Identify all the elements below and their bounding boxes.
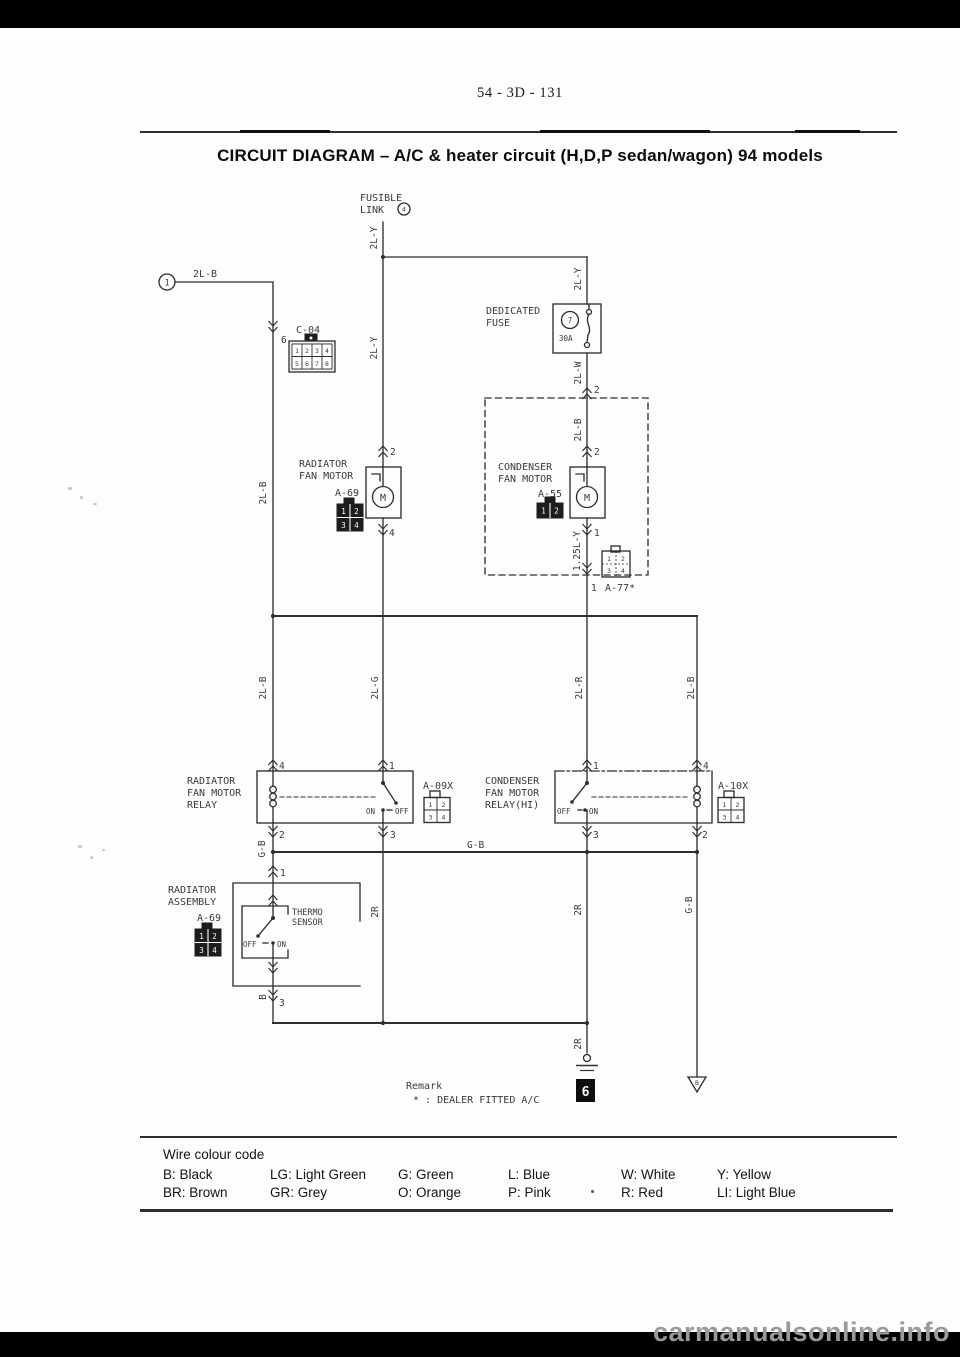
component-label: FAN MOTOR [187,788,242,799]
component-label: FAN MOTOR [485,788,540,799]
cell-number: 1 [341,507,346,516]
wire-label: 2R [370,906,381,918]
pin-label: 3 [279,998,285,1009]
component-label: ASSEMBLY [168,897,216,908]
relay-contact-dot [570,800,574,804]
connector-tab-dot [310,337,313,340]
relay-switch-arm [383,783,396,803]
pin-label: 2 [390,447,396,458]
switch-contact-dot [256,934,260,938]
legend-entry: GR: Grey [270,1185,327,1200]
scan-speck [591,1190,594,1193]
pin-label: 2 [594,447,600,458]
switch-contact-dot [271,941,275,945]
pin-label: 4 [389,528,395,539]
relay-contact-dot [583,808,587,812]
connector-label: A-69 [197,913,221,924]
wire-label: 2L-R [574,676,585,699]
switch-off-label: OFF [243,940,257,949]
legend-entry: R: Red [621,1185,663,1200]
radiator-fan-motor-relay: 4 1 RADIATOR FAN MOTOR RELAY ON OFF A-09… [187,760,453,841]
cell-number: 1 [541,507,546,516]
wire-label: G-B [684,896,695,913]
ground-point-b: B [688,1077,706,1092]
junction-dot [271,850,275,854]
component-label: RADIATOR [187,776,236,787]
cell-number: 4 [212,946,217,955]
junction-dot [695,850,699,854]
junction-dot [381,255,385,259]
junction-dot [271,614,275,618]
power-source-terminal: 1 2L-B [159,269,217,290]
fuse-element-icon [587,314,590,342]
legend-entry: B: Black [163,1167,213,1182]
legend-entry: O: Orange [398,1185,461,1200]
connector-tab-icon [344,498,354,504]
fuse-box [553,304,601,353]
wire-label: 2L-W [573,361,584,384]
remark-text: * : DEALER FITTED A/C [413,1095,539,1106]
pin-label: 1 [594,528,600,539]
component-label: CONDENSER [485,776,540,787]
cell-number: 5 [295,360,299,368]
connector-tab-icon [545,497,555,503]
legend-entry: P: Pink [508,1185,551,1200]
cell-number: 6 [305,360,309,368]
condenser-fan-motor: CONDENSER FAN MOTOR 2L-B 2 A-55 1 2 M 1 … [498,418,605,571]
component-label: RADIATOR [168,885,217,896]
remark-heading: Remark [406,1081,442,1092]
terminal-number: 1 [164,279,169,289]
manual-scan-page: 54 - 3D - 131 CIRCUIT DIAGRAM – A/C & he… [0,0,960,1357]
cell-number: 4 [325,347,329,355]
wire-label: 2L-G [370,676,381,699]
cell-number: 8 [325,360,329,368]
relay-coil-icon [694,786,701,793]
thermo-sensor-box [242,906,288,958]
cell-number: 4 [621,567,625,575]
legend-entry: LG: Light Green [270,1167,366,1182]
component-label: FAN MOTOR [299,471,354,482]
component-label: SENSOR [292,918,324,928]
ground-number: 6 [582,1085,590,1100]
ground-icon [584,1055,591,1062]
connector-a77: 1 2 3 4 1 A-77* [583,546,636,594]
dedicated-fuse: DEDICATED FUSE 7 30A 2L-W 2 [486,304,601,399]
wire-label: 2L-B [258,676,269,699]
cell-number: 3 [429,814,433,822]
pin-label: 2 [279,830,285,841]
cell-number: 3 [315,347,319,355]
junction-dot [381,1021,385,1025]
component-label: THERMO [292,908,323,918]
legend-entry: Y: Yellow [717,1167,771,1182]
cell-number: 2 [554,507,559,516]
wire-label: 1.25L-Y [572,531,583,571]
wire-label: 2L-B [258,481,269,504]
relay-switch-arm [572,783,587,802]
connector-label: A-77* [605,583,635,594]
junction-dot [585,850,589,854]
relay-coil-icon [270,786,277,793]
component-label: FUSE [486,318,510,329]
component-label: FUSIBLE [360,193,402,204]
circuit-diagram: 1 2L-B FUSIBLE LINK 4 2L-Y 2L-Y 2L-Y DED… [0,0,960,1357]
wire-label: B [258,994,269,1000]
component-label: RADIATOR [299,459,348,470]
remark-note: Remark * : DEALER FITTED A/C [406,1081,539,1106]
condenser-fan-motor-relay: 1 4 CONDENSER FAN MOTOR RELAY(HI) OFF ON… [485,760,748,841]
assembly-box [233,883,360,986]
wire-label: 2L-Y [573,267,584,290]
ground-letter: B [695,1079,699,1087]
wire-label: 2L-B [573,418,584,441]
motor-brush-icon [372,467,383,486]
component-label: RELAY [187,800,217,811]
component-label: CONDENSER [498,462,553,473]
wire-label: 2L-Y [369,226,380,249]
component-label: DEDICATED [486,306,540,317]
switch-off-label: OFF [395,807,409,816]
connector-label: A-69 [335,488,359,499]
cell-number: 1 [295,347,299,355]
wire-label: G-B [257,840,268,857]
fusible-link: FUSIBLE LINK 4 2L-Y 2L-Y 2L-Y [360,193,584,359]
cell-number: 2 [442,801,446,809]
fuse-number: 7 [568,316,573,325]
legend-divider-top [140,1136,897,1138]
relay-coil-icon [694,793,701,800]
pin-label: 2 [702,830,708,841]
cell-number: 3 [341,521,346,530]
component-label: LINK [360,205,384,216]
motor-brush-icon [576,467,587,486]
cell-number: 2 [212,932,217,941]
legend-entry: W: White [621,1167,676,1182]
switch-off-label: OFF [557,807,571,816]
pin-label: 3 [593,830,599,841]
relay-contact-dot [381,808,385,812]
relay-coil-icon [270,800,277,807]
wire-label: 2L-B [193,269,217,280]
radiator-fan-motor: RADIATOR FAN MOTOR 2 A-69 1 2 3 4 M 4 [299,446,401,539]
wire-label: 2R [573,904,584,916]
cell-number: 1 [607,555,611,563]
wire-label: 2R [573,1038,584,1050]
cell-number: 1 [199,932,204,941]
switch-on-label: ON [277,940,286,949]
component-label: RELAY(HI) [485,800,539,811]
legend-heading: Wire colour code [163,1147,264,1162]
pin-label: 3 [390,830,396,841]
cell-number: 2 [305,347,309,355]
cell-number: 4 [354,521,359,530]
fuse-rating: 30A [559,334,573,343]
switch-on-label: ON [366,807,375,816]
legend-divider-bottom [140,1209,893,1212]
switch-arm [258,918,273,936]
cell-number: 4 [442,814,446,822]
wire-label: 2L-B [686,676,697,699]
motor-letter: M [380,493,386,504]
fusible-link-number: 4 [402,206,406,214]
cell-number: 2 [736,801,740,809]
cell-number: 3 [607,567,611,575]
wire-segment [175,282,273,616]
motor-letter: M [584,493,590,504]
wire-label: 2L-Y [369,336,380,359]
relay-contact-dot [394,801,398,805]
pin-label: 1 [591,583,597,594]
legend-entry: LI: Light Blue [717,1185,796,1200]
ground-point-6: 2R 6 [573,1038,598,1102]
component-label: FAN MOTOR [498,474,553,485]
pin-label: 6 [281,335,287,346]
fuse-element-icon [585,343,590,348]
pin-label: 2 [594,385,600,396]
switch-on-label: ON [589,807,598,816]
cell-number: 2 [354,507,359,516]
legend-entry: L: Blue [508,1167,550,1182]
watermark: carmanualsonline.info [0,1317,950,1348]
cell-number: 1 [723,801,727,809]
junction-dot [585,1021,589,1025]
wire-label: G-B [467,840,484,851]
branch-wire-labels: 2L-B 2L-G 2L-R 2L-B [258,676,697,699]
legend-entry: BR: Brown [163,1185,228,1200]
dealer-fitted-boundary [485,398,648,575]
cell-number: 2 [621,555,625,563]
legend-entry: G: Green [398,1167,454,1182]
cell-number: 1 [429,801,433,809]
relay-coil-icon [270,793,277,800]
cell-number: 7 [315,360,319,368]
relay-coil-icon [694,800,701,807]
connector-tab-icon [202,923,212,929]
cell-number: 4 [736,814,740,822]
pin-label: 1 [280,868,286,879]
radiator-assembly: 1 RADIATOR ASSEMBLY A-69 1 2 3 4 THERMO … [168,866,360,1009]
cell-number: 3 [723,814,727,822]
cell-number: 3 [199,946,204,955]
